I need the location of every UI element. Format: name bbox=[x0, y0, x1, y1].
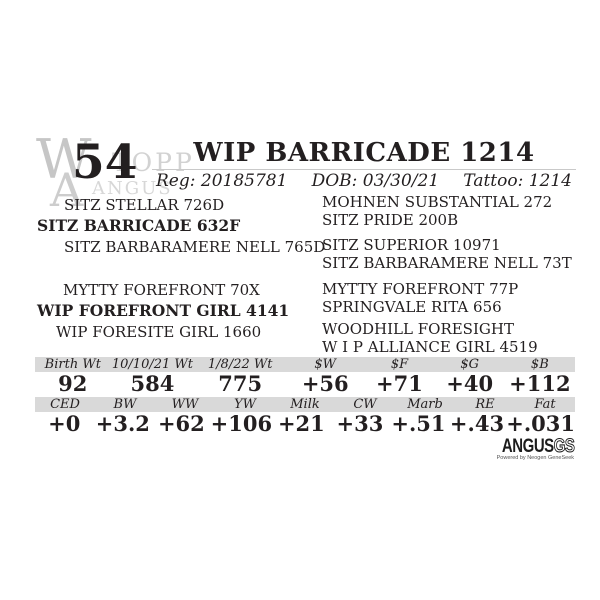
sire-grandsire: SITZ STELLAR 726D bbox=[64, 196, 224, 214]
weights-value: 92 bbox=[35, 373, 111, 394]
lot-number: 54 bbox=[72, 139, 137, 186]
epd-value: +33 bbox=[331, 413, 390, 434]
catalog-page: W A TOPP ANGUS 54 WIP BARRICADE 1214 Reg… bbox=[0, 0, 600, 600]
sire-granddam: SITZ BARBARAMERE NELL 765D bbox=[64, 238, 325, 256]
animal-name-title: WIP BARRICADE 1214 bbox=[152, 139, 576, 168]
dob-label: DOB: bbox=[312, 171, 358, 191]
reg-field: Reg: 20185781 bbox=[156, 171, 287, 191]
title-divider bbox=[152, 169, 576, 170]
weights-value: 584 bbox=[111, 373, 195, 394]
ancestor-line: MOHNEN SUBSTANTIAL 272 bbox=[322, 193, 552, 211]
epd-value: +.43 bbox=[448, 413, 507, 434]
epd-header: CW bbox=[335, 397, 395, 412]
epd-value: +21 bbox=[272, 413, 331, 434]
epd-header: BW bbox=[95, 397, 155, 412]
weights-header: $F bbox=[364, 357, 434, 372]
weights-header: $B bbox=[505, 357, 575, 372]
angusgs-wordmark: ANGUSGS bbox=[501, 436, 574, 456]
gs-logo-outline: GS bbox=[553, 435, 574, 457]
epd-value: +.51 bbox=[389, 413, 448, 434]
ancestor-line: WOODHILL FORESIGHT bbox=[322, 320, 514, 338]
tattoo-value: 1214 bbox=[529, 171, 572, 191]
epd-header: CED bbox=[35, 397, 95, 412]
reg-label: Reg: bbox=[156, 171, 195, 191]
weights-value: 775 bbox=[194, 373, 286, 394]
epd-value: +0 bbox=[35, 413, 94, 434]
sire-name: SITZ BARRICADE 632F bbox=[37, 217, 240, 236]
angusgs-logo: ANGUSGS Powered by Neogen GeneSeek bbox=[492, 436, 574, 461]
dob-field: DOB: 03/30/21 bbox=[312, 171, 440, 191]
weights-header: $W bbox=[286, 357, 364, 372]
angus-logo-solid: ANGUS bbox=[501, 435, 553, 457]
epd-header: WW bbox=[155, 397, 215, 412]
weights-value-row: 92 584 775 +56 +71 +40 +112 bbox=[35, 373, 575, 394]
tattoo-label: Tattoo: bbox=[463, 171, 523, 191]
weights-header: $G bbox=[435, 357, 505, 372]
weights-header: 10/10/21 Wt bbox=[111, 357, 195, 372]
tattoo-field: Tattoo: 1214 bbox=[463, 171, 572, 191]
ancestor-line: SITZ BARBARAMERE NELL 73T bbox=[322, 254, 572, 272]
epd-header: RE bbox=[455, 397, 515, 412]
epd-header: Milk bbox=[275, 397, 335, 412]
weights-value: +56 bbox=[286, 373, 364, 394]
dam-grandsire: MYTTY FOREFRONT 70X bbox=[63, 281, 260, 299]
epd-value: +62 bbox=[152, 413, 211, 434]
reg-value: 20185781 bbox=[201, 171, 288, 191]
dob-value: 03/30/21 bbox=[363, 171, 439, 191]
weights-header-row: Birth Wt 10/10/21 Wt 1/8/22 Wt $W $F $G … bbox=[35, 357, 575, 372]
dam-name: WIP FOREFRONT GIRL 4141 bbox=[37, 302, 289, 321]
epd-value: +3.2 bbox=[94, 413, 153, 434]
weights-value: +40 bbox=[435, 373, 505, 394]
weights-value: +71 bbox=[364, 373, 434, 394]
epd-value: +.031 bbox=[506, 413, 575, 434]
epd-header-row: CED BW WW YW Milk CW Marb RE Fat bbox=[35, 397, 575, 412]
weights-header: 1/8/22 Wt bbox=[194, 357, 286, 372]
epd-value-row: +0 +3.2 +62 +106 +21 +33 +.51 +.43 +.031 bbox=[35, 413, 575, 434]
epd-value: +106 bbox=[211, 413, 272, 434]
ancestor-line: SITZ PRIDE 200B bbox=[322, 211, 458, 229]
ancestor-line: W I P ALLIANCE GIRL 4519 bbox=[322, 338, 538, 356]
registration-row: Reg: 20185781 DOB: 03/30/21 Tattoo: 1214 bbox=[156, 171, 572, 191]
weights-header: Birth Wt bbox=[35, 357, 111, 372]
epd-header: Fat bbox=[515, 397, 575, 412]
ancestor-line: SPRINGVALE RITA 656 bbox=[322, 298, 502, 316]
ancestor-line: MYTTY FOREFRONT 77P bbox=[322, 280, 518, 298]
ancestor-line: SITZ SUPERIOR 10971 bbox=[322, 236, 501, 254]
dam-granddam: WIP FORESITE GIRL 1660 bbox=[56, 323, 261, 341]
weights-value: +112 bbox=[505, 373, 575, 394]
epd-header: YW bbox=[215, 397, 275, 412]
epd-header: Marb bbox=[395, 397, 455, 412]
